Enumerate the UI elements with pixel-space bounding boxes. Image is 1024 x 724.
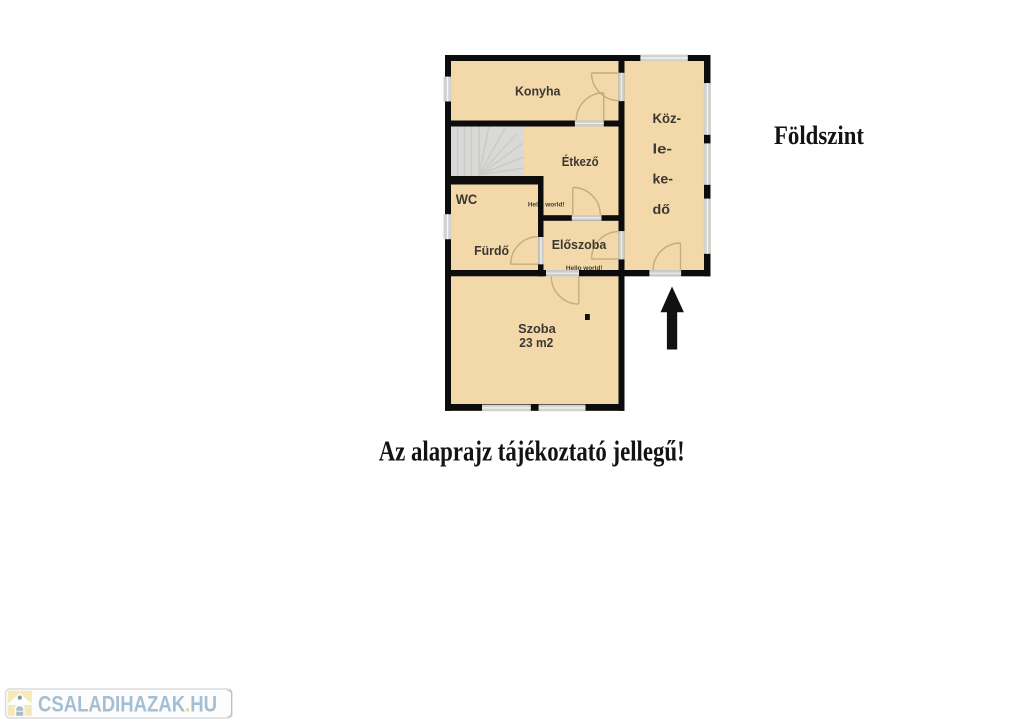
svg-text:Fürdő: Fürdő (474, 244, 509, 258)
svg-text:Köz-: Köz- (653, 110, 682, 126)
svg-text:23 m2: 23 m2 (519, 336, 553, 350)
svg-text:Étkező: Étkező (562, 154, 599, 169)
svg-text:WC: WC (456, 192, 478, 207)
svg-text:ke-: ke- (653, 170, 674, 186)
svg-text:CSALADIHAZAK.HU: CSALADIHAZAK.HU (38, 692, 217, 717)
svg-text:Szoba: Szoba (518, 322, 557, 336)
svg-text:Az alaprajz tájékoztató jelleg: Az alaprajz tájékoztató jellegű! (379, 436, 685, 468)
svg-text:Konyha: Konyha (515, 84, 562, 98)
svg-text:Hello world!: Hello world! (528, 201, 565, 208)
svg-text:Előszoba: Előszoba (552, 238, 608, 252)
svg-text:dő: dő (653, 201, 671, 217)
svg-text:Földszint: Földszint (774, 120, 864, 150)
svg-text:le-: le- (653, 140, 673, 156)
